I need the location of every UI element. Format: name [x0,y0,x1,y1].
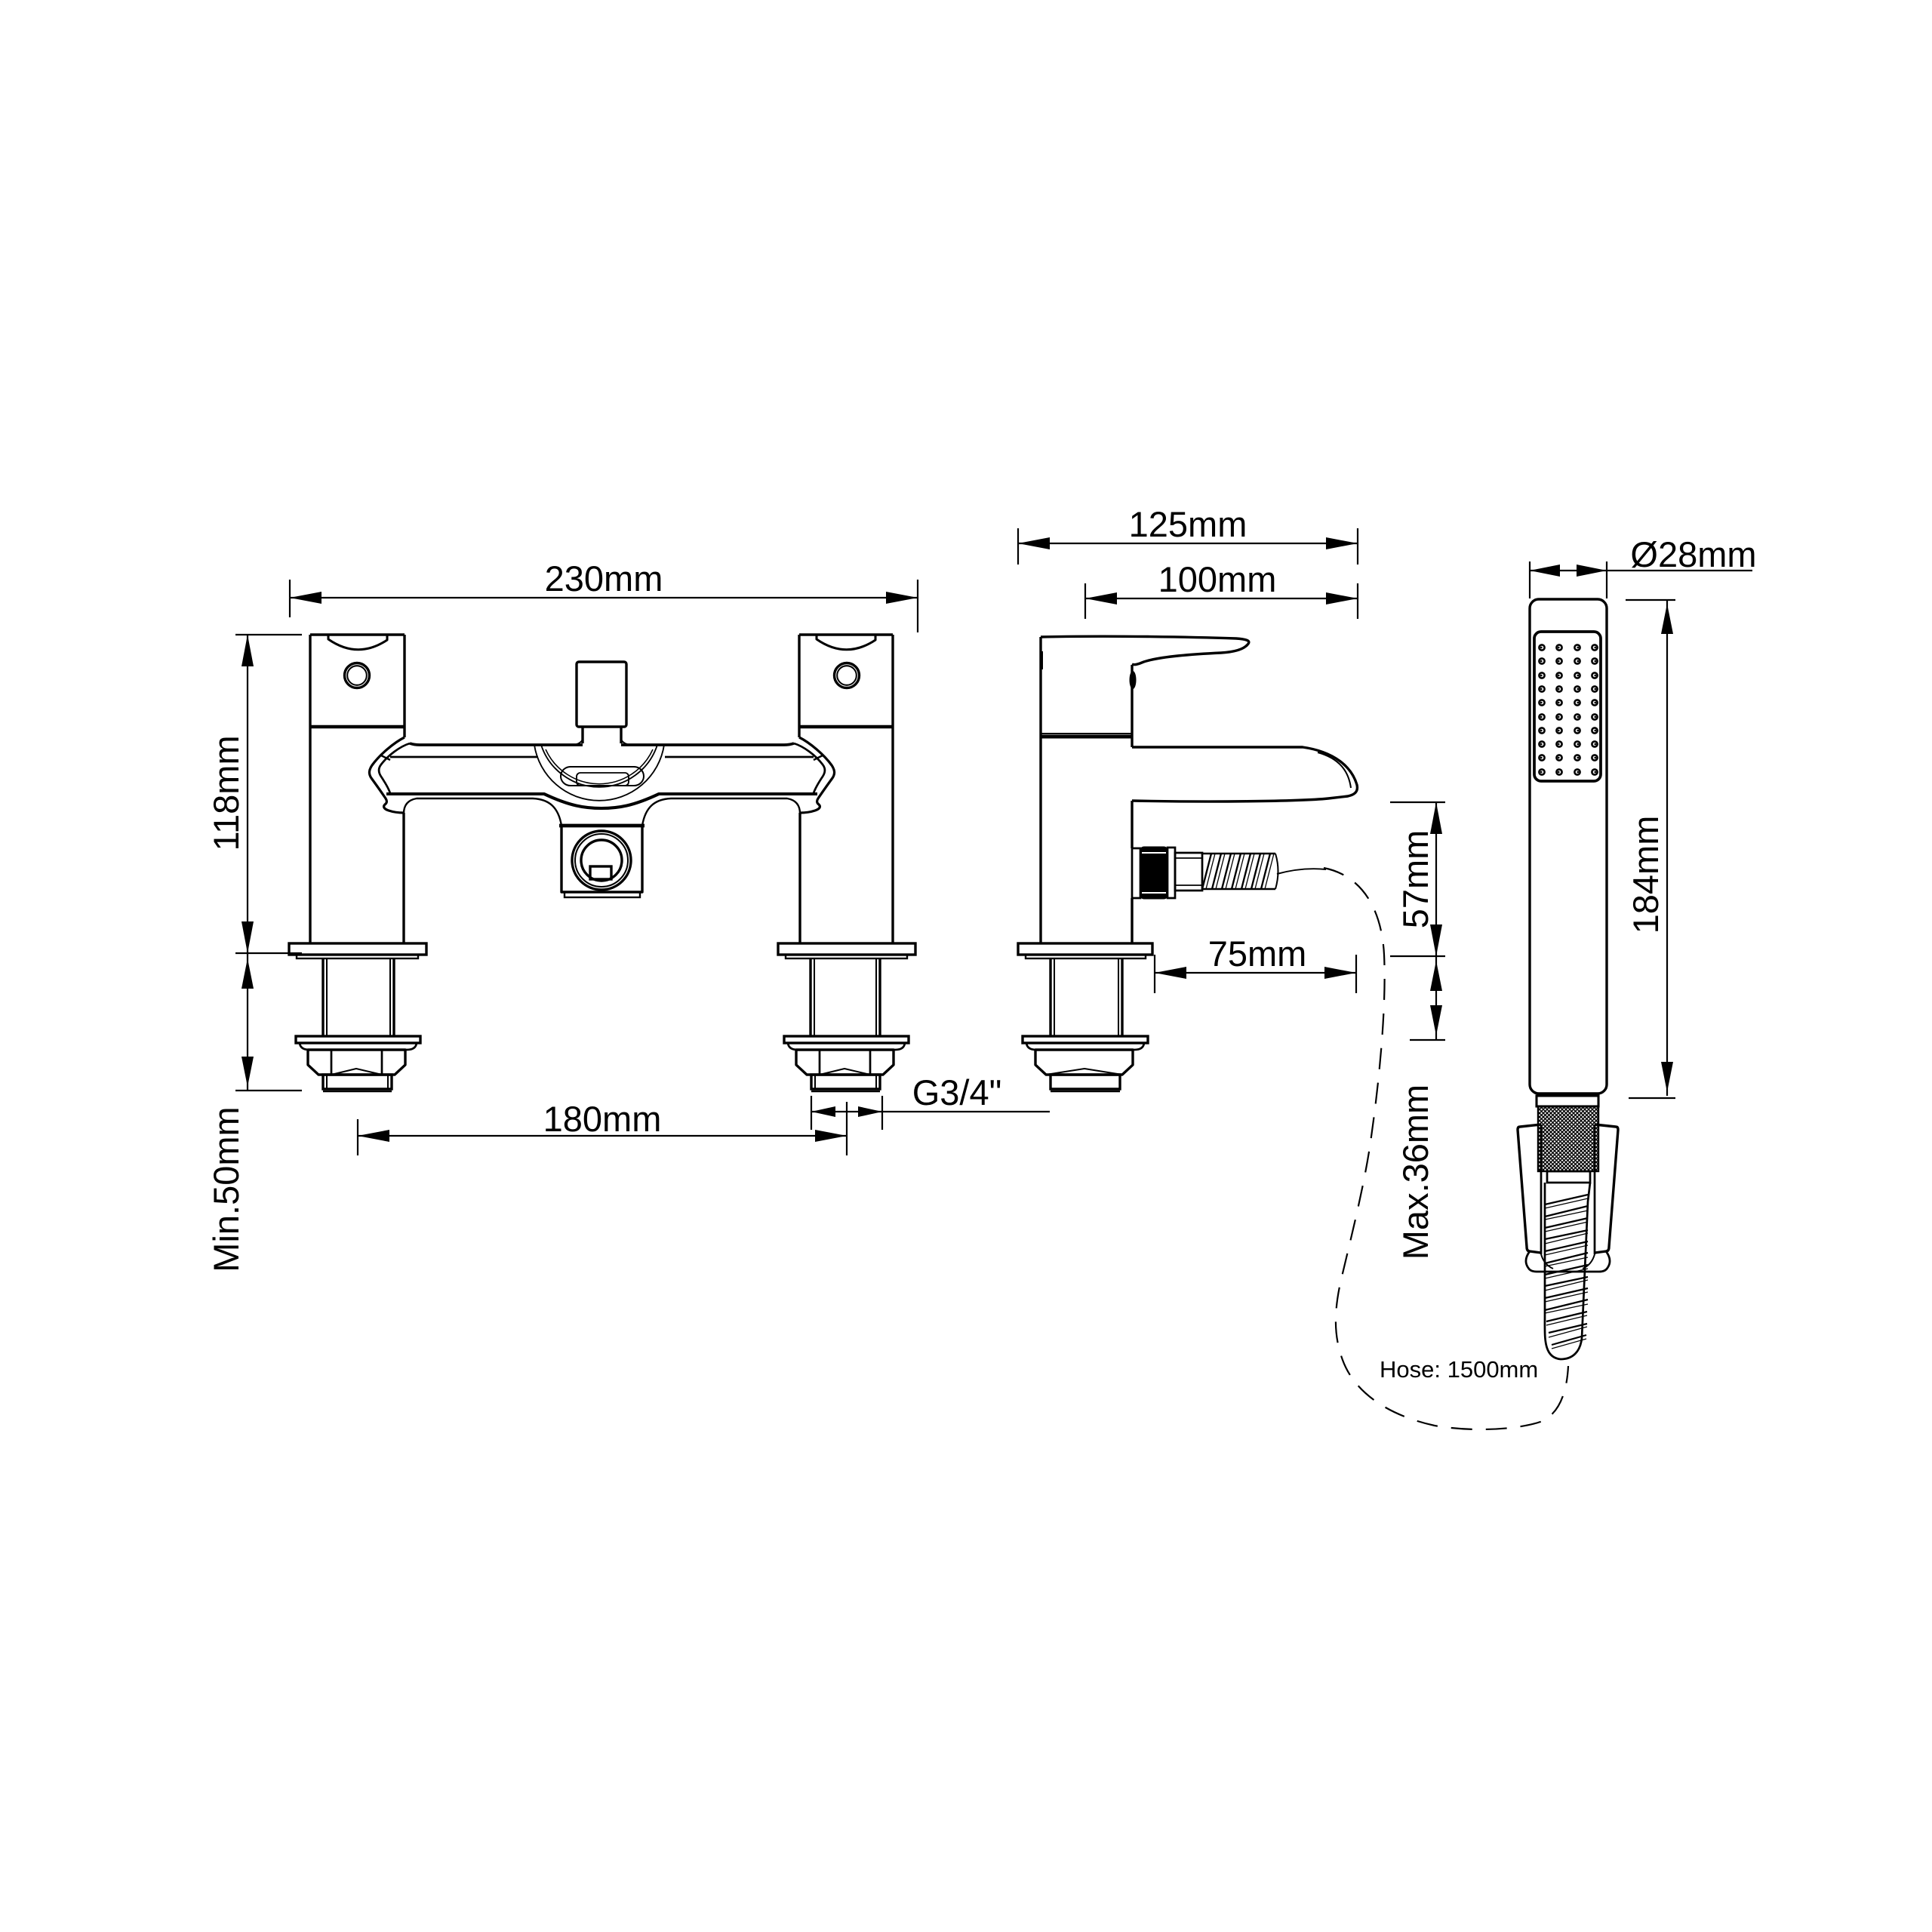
svg-text:Ø28mm: Ø28mm [1630,534,1756,574]
svg-text:G3/4": G3/4" [912,1072,1002,1112]
svg-text:75mm: 75mm [1208,934,1307,974]
svg-text:57mm: 57mm [1395,830,1435,929]
svg-text:Min.50mm: Min.50mm [206,1106,246,1272]
svg-text:180mm: 180mm [543,1099,662,1139]
svg-text:118mm: 118mm [206,735,246,851]
svg-text:Hose: 1500mm: Hose: 1500mm [1380,1356,1538,1383]
svg-text:125mm: 125mm [1129,504,1247,544]
svg-text:100mm: 100mm [1158,559,1277,599]
svg-text:Max.36mm: Max.36mm [1395,1084,1435,1260]
svg-text:230mm: 230mm [545,558,663,598]
svg-text:184mm: 184mm [1626,816,1666,934]
